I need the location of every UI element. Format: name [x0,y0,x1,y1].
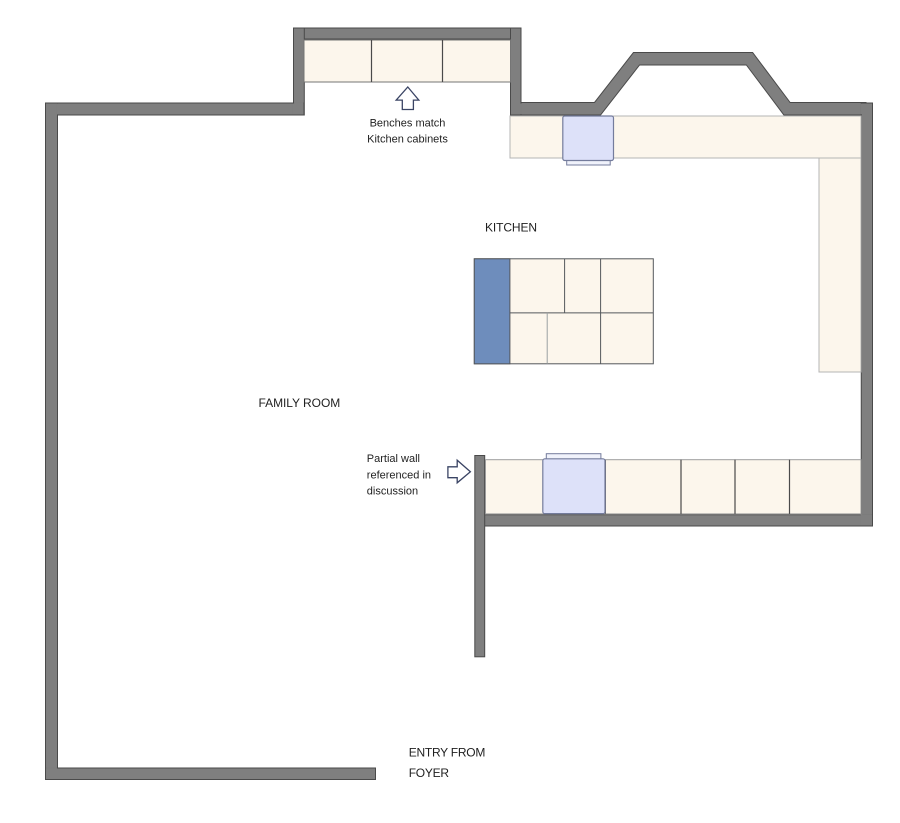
svg-text:Kitchen cabinets: Kitchen cabinets [367,134,448,146]
svg-text:FAMILY ROOM: FAMILY ROOM [259,396,341,410]
svg-text:Benches match: Benches match [370,118,446,130]
svg-text:Partial wall: Partial wall [367,453,420,465]
svg-text:referenced in: referenced in [367,469,431,481]
svg-text:FOYER: FOYER [409,766,450,780]
svg-text:ENTRY FROM: ENTRY FROM [409,745,486,759]
svg-text:KITCHEN: KITCHEN [485,221,537,235]
svg-text:discussion: discussion [367,485,418,497]
